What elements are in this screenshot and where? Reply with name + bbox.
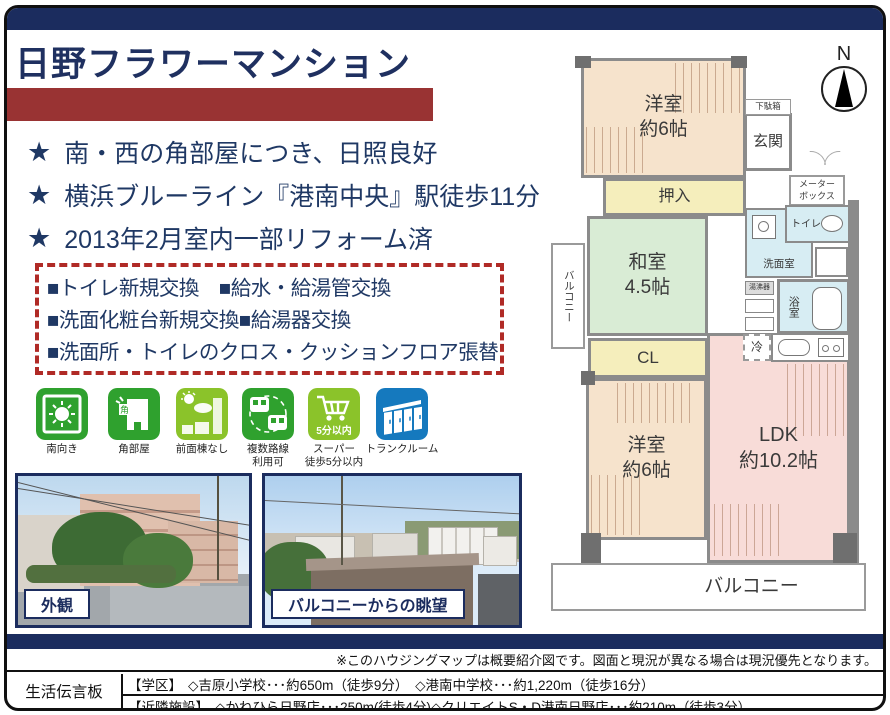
feature-label: 角部屋 (118, 443, 150, 456)
stove-icon (818, 338, 844, 357)
trunk-room-icon (376, 388, 428, 440)
corner-room-icon: 角 (108, 388, 160, 440)
room-western-1: 洋室 約6帖 (581, 58, 746, 178)
vanity-cabinet (815, 247, 848, 277)
south-facing-icon (36, 388, 88, 440)
highlight-2: ★ 横浜ブルーライン『港南中央』駅徒歩11分 (27, 175, 540, 215)
star-icon: ★ (27, 137, 51, 168)
fridge-space: 冷 (743, 334, 771, 361)
photo-caption-exterior: 外観 (24, 589, 90, 619)
shopping-cart-icon: 5分以内 (308, 388, 360, 440)
feature-label: 南向き (46, 443, 78, 456)
renovation-line: ■洗面所・トイレのクロス・クッションフロア張替 (47, 337, 494, 369)
room-ldk: LDK 約10.2帖 (707, 333, 850, 563)
feature-trunk-room: トランクルーム (359, 388, 445, 456)
wall-pillar (581, 533, 601, 563)
toilet-bowl-icon (821, 215, 843, 232)
room-genkan: 玄関 (744, 113, 792, 171)
board-rows: 【学区】 ◇吉原小学校･･･約650m（徒歩9分） ◇港南中学校･･･約1,22… (123, 674, 883, 708)
row-label: 【学区】 (128, 674, 182, 694)
board-row-facilities: 【近隣施設】 ◇かねひら日野店･･･250m(徒歩4分)◇クリエイトS・D港南日… (123, 696, 883, 711)
flyer-page: 日野フラワーマンション ★ 南・西の角部屋につき、日照良好 ★ 横浜ブルーライン… (0, 0, 890, 715)
room-balcony-bottom: バルコニー (551, 563, 866, 611)
washer-icon (752, 215, 776, 239)
row-text: ◇吉原小学校･･･約650m（徒歩9分） ◇港南中学校･･･約1,220m（徒歩… (188, 674, 654, 694)
highlight-text: 南・西の角部屋につき、日照良好 (64, 134, 437, 170)
feature-label: スーパー 徒歩5分以内 (305, 443, 363, 468)
highlight-text: 横浜ブルーライン『港南中央』駅徒歩11分 (64, 177, 540, 213)
feature-label: 前面棟なし (176, 443, 229, 456)
wall-pillar (581, 371, 595, 385)
open-view-icon (176, 388, 228, 440)
room-toilet: トイレ (785, 205, 850, 243)
wall-pillar (731, 56, 747, 68)
page-title: 日野フラワーマンション (15, 36, 411, 87)
kitchen-counter (771, 333, 850, 362)
room-cl: CL (588, 338, 708, 378)
feature-south-facing: 南向き (23, 388, 101, 456)
highlight-text: 2013年2月室内一部リフォーム済 (64, 220, 433, 256)
floor-plan: 洋室 約6帖 玄関 下駄箱 メーター ボックス 押入 和室 4.5帖 バルコ (545, 55, 886, 630)
feature-corner-room: 角 角部屋 (95, 388, 173, 456)
cart-badge-text: 5分以内 (316, 424, 352, 437)
corner-tag-text: 角 (120, 404, 129, 415)
room-washitsu: 和室 4.5帖 (587, 216, 708, 336)
plan-small-box (745, 317, 774, 331)
wall-pillar (575, 56, 591, 68)
renovation-line: ■トイレ新規交換 ■給水・給湯管交換 (47, 273, 494, 305)
renovation-line: ■洗面化粧台新規交換■給湯器交換 (47, 305, 494, 337)
title-underline-bar (7, 88, 433, 121)
room-western-2: 洋室 約6帖 (586, 378, 707, 540)
photo-caption-balcony-view: バルコニーからの眺望 (271, 589, 465, 619)
room-getabako: 下駄箱 (745, 99, 791, 115)
highlight-3: ★ 2013年2月室内一部リフォーム済 (27, 218, 433, 258)
balcony-view-photo: バルコニーからの眺望 (262, 473, 522, 628)
disclaimer-note: ※このハウジングマップは概要紹介図です。図面と現況が異なる場合は現況優先となりま… (7, 649, 883, 672)
room-balcony-left: バルコニー (551, 243, 585, 349)
renovation-box: ■トイレ新規交換 ■給水・給湯管交換 ■洗面化粧台新規交換■給湯器交換 ■洗面所… (35, 263, 504, 375)
disclaimer-text: ※このハウジングマップは概要紹介図です。図面と現況が異なる場合は現況優先となりま… (336, 650, 877, 669)
star-icon: ★ (27, 223, 51, 254)
plan-small-box (745, 299, 774, 313)
top-navy-bar (7, 8, 883, 30)
feature-label: 複数路線 利用可 (247, 443, 289, 468)
row-label: 【近隣施設】 (128, 696, 209, 711)
wall-pillar (833, 533, 857, 563)
bathtub-icon (812, 287, 842, 330)
exterior-photo: 外観 (15, 473, 252, 628)
sink-icon (778, 339, 810, 356)
room-oshiire: 押入 (603, 178, 746, 216)
bottom-navy-bar (7, 634, 883, 649)
board-title: 生活伝言板 (7, 674, 123, 708)
info-board: 生活伝言板 【学区】 ◇吉原小学校･･･約650m（徒歩9分） ◇港南中学校･･… (7, 674, 883, 708)
row-text: ◇かねひら日野店･･･250m(徒歩4分)◇クリエイトS・D港南日野店･･･約2… (215, 696, 751, 711)
highlight-1: ★ 南・西の角部屋につき、日照良好 (27, 132, 437, 172)
room-bath: 浴室 (777, 279, 850, 334)
star-icon: ★ (27, 180, 51, 211)
feature-label: トランクルーム (366, 443, 439, 456)
board-row-schools: 【学区】 ◇吉原小学校･･･約650m（徒歩9分） ◇港南中学校･･･約1,22… (123, 674, 883, 696)
multiple-train-lines-icon (242, 388, 294, 440)
flyer-frame: 日野フラワーマンション ★ 南・西の角部屋につき、日照良好 ★ 横浜ブルーライン… (4, 5, 886, 711)
water-heater: 湯沸器 (745, 281, 774, 295)
